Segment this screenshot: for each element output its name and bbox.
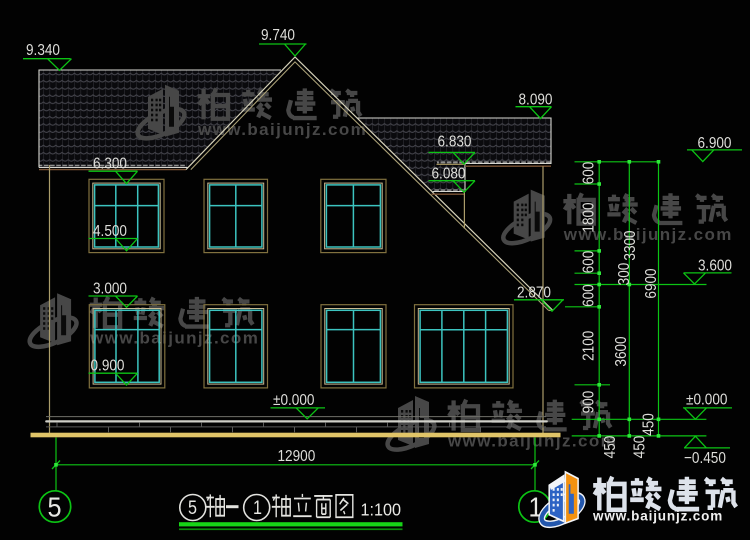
svg-text:3300: 3300 [622,230,639,260]
svg-text:±0.000: ±0.000 [686,392,727,409]
svg-text:±0.000: ±0.000 [273,392,314,409]
svg-text:3.600: 3.600 [698,257,732,274]
svg-text:1800: 1800 [581,202,598,232]
svg-text:6.080: 6.080 [432,166,466,183]
svg-text:2.870: 2.870 [517,284,551,301]
svg-text:8.090: 8.090 [519,92,553,109]
svg-text:9.740: 9.740 [261,27,295,44]
svg-text:6.900: 6.900 [698,135,732,152]
svg-text:6.830: 6.830 [438,134,472,151]
svg-text:900: 900 [581,391,598,414]
svg-text:12900: 12900 [278,448,316,465]
svg-text:2100: 2100 [581,331,598,361]
svg-text:300: 300 [616,263,633,286]
svg-text:450: 450 [632,436,649,459]
svg-text:9.340: 9.340 [26,42,60,59]
svg-text:1:100: 1:100 [361,500,402,520]
svg-text:6.300: 6.300 [93,156,127,173]
svg-text:5: 5 [48,491,62,523]
svg-text:6900: 6900 [643,268,660,298]
svg-text:450: 450 [641,413,658,436]
svg-text:5: 5 [188,497,197,519]
svg-text:450: 450 [602,436,619,459]
svg-text:0.900: 0.900 [91,358,125,375]
svg-text:3.000: 3.000 [93,281,127,298]
svg-text:−0.450: −0.450 [684,450,726,467]
svg-text:600: 600 [581,251,598,274]
svg-text:600: 600 [581,162,598,185]
svg-text:www.baijunjz.com: www.baijunjz.com [592,509,723,524]
svg-text:600: 600 [581,284,598,307]
svg-text:4.500: 4.500 [93,223,127,240]
svg-text:1: 1 [253,497,262,519]
svg-text:3600: 3600 [613,336,630,366]
